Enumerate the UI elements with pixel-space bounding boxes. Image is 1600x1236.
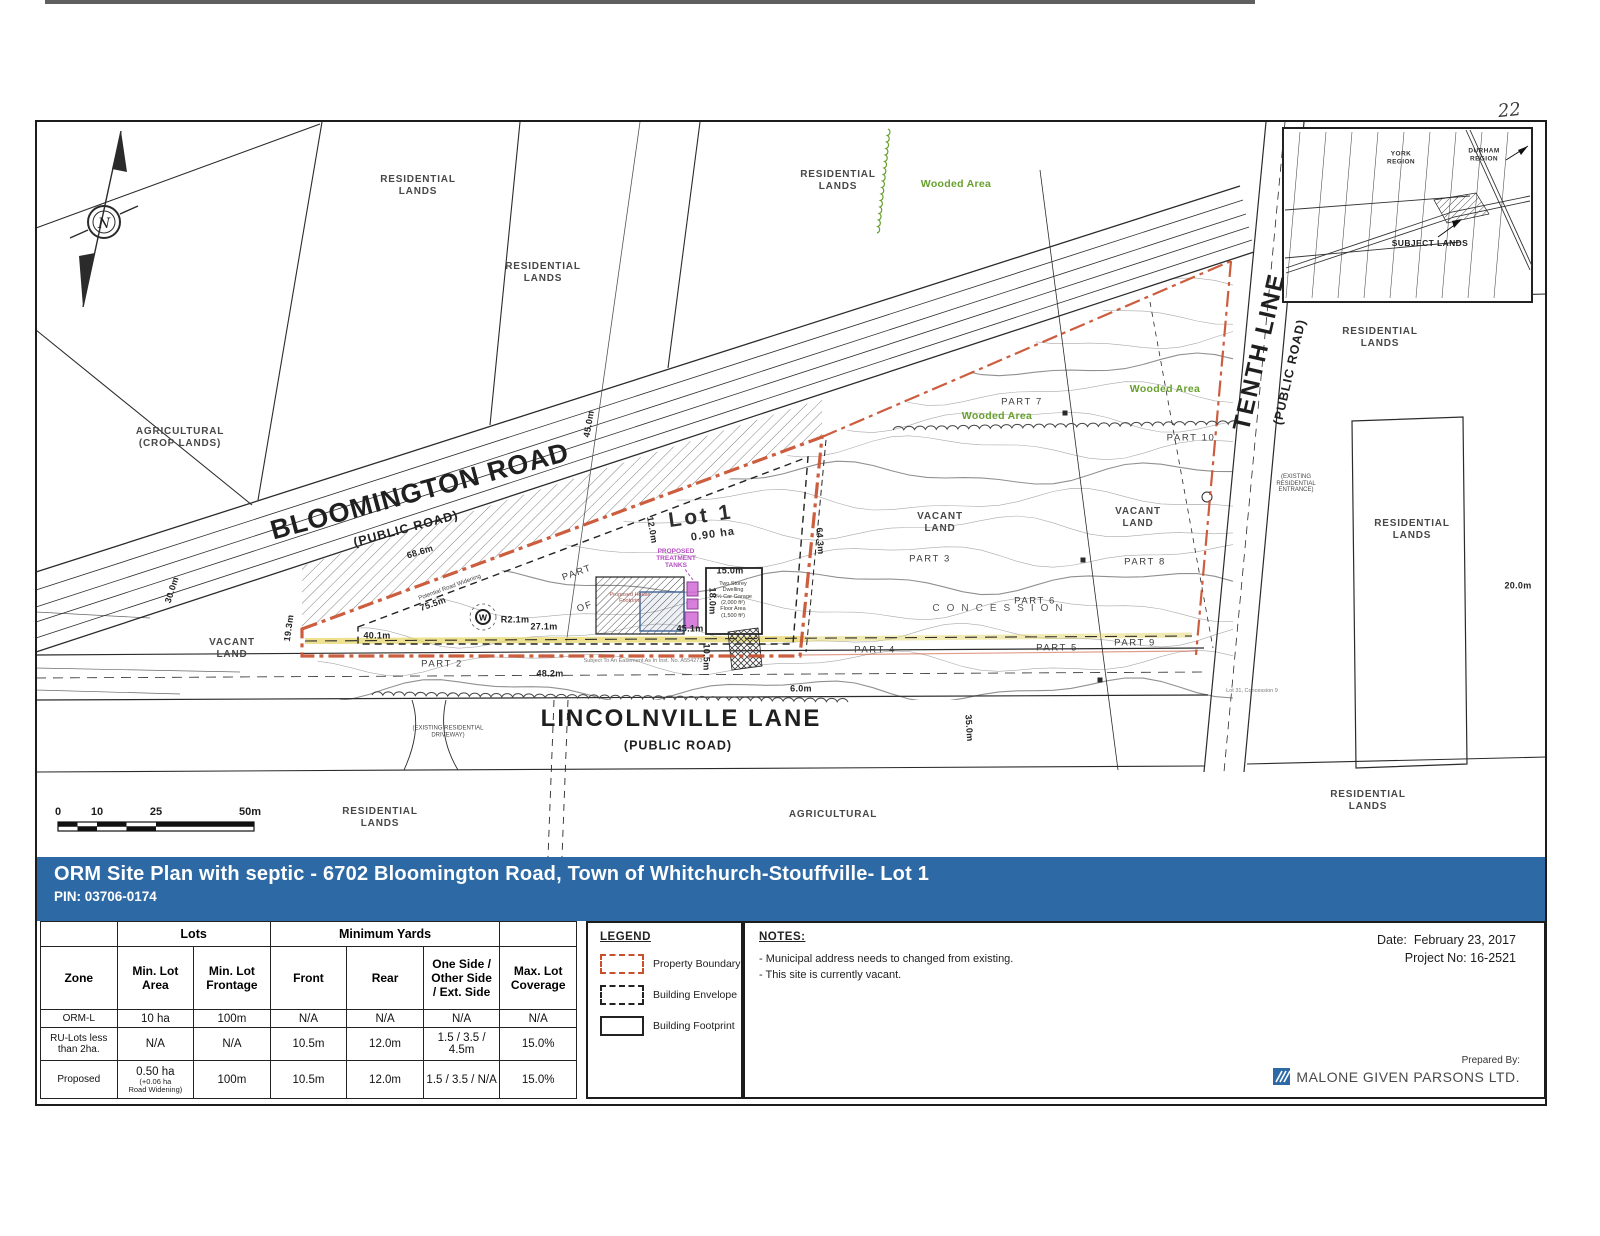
vacant-land-right: VACANT LAND	[1115, 506, 1161, 530]
table-column-header: Min. Lot Frontage	[194, 947, 271, 1010]
potential-road-widening: Potential Road Widening	[418, 574, 482, 603]
wooded-area-right: Wooded Area	[1130, 383, 1200, 395]
table-cell: 0.50 ha(+0.06 ha Road Widening)	[117, 1061, 194, 1099]
dim-r2-1m: R2.1m	[501, 615, 530, 626]
table-cell: N/A	[423, 1010, 500, 1028]
residential-lands-topleft-2: RESIDENTIAL LANDS	[505, 261, 580, 285]
residential-lands-bottom-right: RESIDENTIAL LANDS	[1330, 789, 1405, 813]
part-word: PART	[561, 562, 594, 583]
residential-lands-bottom-left: RESIDENTIAL LANDS	[342, 806, 417, 830]
agricultural-crop-lands: AGRICULTURAL (CROP LANDS)	[136, 426, 224, 450]
table-cell: 1.5 / 3.5 / 4.5m	[423, 1028, 500, 1061]
company-name: MALONE GIVEN PARSONS LTD.	[1296, 1069, 1520, 1085]
pin-number: PIN: 03706-0174	[54, 889, 1546, 904]
dim-64-3m: 64.3m	[814, 527, 826, 555]
table-cell: N/A	[500, 1010, 577, 1028]
table-cell: 10 ha	[117, 1010, 194, 1028]
existing-residential-entrance: (EXISTING RESIDENTIAL ENTRANCE)	[1276, 474, 1315, 494]
scale-tick: 10	[91, 806, 103, 818]
residential-lands-topleft-1: RESIDENTIAL LANDS	[380, 174, 455, 198]
vacant-land-mid: VACANT LAND	[917, 511, 963, 535]
zoning-table: LotsMinimum YardsZoneMin. Lot AreaMin. L…	[40, 921, 577, 1099]
scale-tick: 0	[55, 806, 61, 818]
table-cell: 15.0%	[500, 1028, 577, 1061]
note-line: - This site is currently vacant.	[759, 969, 1544, 981]
part-10: PART 10	[1167, 432, 1216, 443]
table-column-header: Zone	[41, 947, 118, 1010]
residential-lands-right-upper: RESIDENTIAL LANDS	[1342, 326, 1417, 350]
dim-19-3m: 19.3m	[282, 614, 296, 642]
table-cell: 1.5 / 3.5 / N/A	[423, 1061, 500, 1099]
dim-45-0m: 45.0m	[581, 410, 596, 438]
inset-durham-region: DURHAM REGION	[1468, 147, 1499, 162]
dim-35-0m: 35.0m	[963, 714, 975, 742]
malone-given-parsons-logo	[1273, 1068, 1290, 1085]
legend-panel: LEGEND Property BoundaryBuilding Envelop…	[586, 921, 743, 1099]
dim-12-0m: 12.0m	[644, 516, 659, 544]
table-column-header: Min. Lot Area	[117, 947, 194, 1010]
table-cell: 15.0%	[500, 1061, 577, 1099]
of-word: OF	[575, 599, 594, 615]
part-8: PART 8	[1124, 556, 1166, 567]
vacant-land-left: VACANT LAND	[209, 637, 255, 661]
agricultural-bottom: AGRICULTURAL	[789, 809, 877, 821]
dim-27-1m: 27.1m	[530, 622, 557, 633]
footprint-note: Proposed House Footprint	[610, 592, 651, 604]
dim-48-2m: 48.2m	[536, 669, 563, 680]
table-cell: 12.0m	[347, 1061, 424, 1099]
legend-item: Building Footprint	[600, 1016, 741, 1036]
part-7: PART 7	[1001, 396, 1043, 407]
project-line: Project No: 16-2521	[1377, 951, 1516, 965]
dim-68-6m: 68.6m	[406, 543, 435, 561]
table-column-header: Max. Lot Coverage	[500, 947, 577, 1010]
table-cell: N/A	[117, 1028, 194, 1061]
table-cell: N/A	[194, 1028, 271, 1061]
dwelling-note: Two Storey Dwelling 2½ Car Garage (2,000…	[714, 581, 752, 619]
plan-title: ORM Site Plan with septic - 6702 Bloomin…	[54, 863, 1546, 886]
table-cell: 10.5m	[270, 1061, 347, 1099]
wooded-area-top: Wooded Area	[921, 178, 991, 190]
table-cell: ORM-L	[41, 1010, 118, 1028]
legend-item-label: Building Footprint	[653, 1020, 735, 1032]
date-line: Date: February 23, 2017	[1377, 933, 1516, 947]
table-cell: 10.5m	[270, 1028, 347, 1061]
easement-note: Subject To An Easement As In Inst. No. A…	[584, 658, 703, 664]
dim-40-1m: 40.1m	[363, 631, 390, 642]
table-group-header	[41, 922, 118, 947]
lincolnville-lane-sub: (PUBLIC ROAD)	[624, 739, 732, 754]
dim-15-0m: 15.0m	[716, 566, 743, 577]
existing-residential-driveway: (EXISTING RESIDENTIAL DRIVEWAY)	[412, 725, 483, 738]
legend-item-label: Property Boundary	[653, 958, 741, 970]
table-cell: N/A	[347, 1010, 424, 1028]
scale-tick: 25	[150, 806, 162, 818]
residential-lands-top: RESIDENTIAL LANDS	[800, 169, 875, 193]
concession: CONCESSION	[932, 603, 1069, 615]
part-5: PART 5	[1036, 642, 1078, 653]
part-3: PART 3	[909, 553, 951, 564]
prepared-by-block: Prepared By: MALONE GIVEN PARSONS LTD.	[1273, 1055, 1520, 1085]
scale-tick: 50m	[239, 806, 261, 818]
legend-title: LEGEND	[600, 931, 741, 943]
dim-20-0m: 20.0m	[1504, 581, 1531, 592]
building-envelope-swatch	[600, 985, 644, 1005]
zoning-table-panel: LotsMinimum YardsZoneMin. Lot AreaMin. L…	[40, 921, 577, 1099]
table-cell: 100m	[194, 1061, 271, 1099]
wooded-area-mid: Wooded Area	[962, 410, 1032, 422]
prepared-by-label: Prepared By:	[1273, 1055, 1520, 1066]
table-cell: 12.0m	[347, 1028, 424, 1061]
table-cell: 100m	[194, 1010, 271, 1028]
table-column-header: One Side / Other Side / Ext. Side	[423, 947, 500, 1010]
legend-item-label: Building Envelope	[653, 989, 737, 1001]
date-project-block: Date: February 23, 2017 Project No: 16-2…	[1377, 933, 1516, 969]
table-column-header: Rear	[347, 947, 424, 1010]
table-group-header: Minimum Yards	[270, 922, 500, 947]
residential-lands-right-mid: RESIDENTIAL LANDS	[1374, 518, 1449, 542]
dim-6-0m: 6.0m	[790, 684, 812, 695]
table-column-header: Front	[270, 947, 347, 1010]
building-footprint-swatch	[600, 1016, 644, 1036]
inset-subject-lands: SUBJECT LANDS	[1392, 238, 1469, 248]
table-group-header: Lots	[117, 922, 270, 947]
dim-45-1m: 45.1m	[676, 624, 703, 635]
handwritten-page-number: 22	[1497, 99, 1522, 122]
table-group-header	[500, 922, 577, 947]
table-cell: RU-Lots less than 2ha.	[41, 1028, 118, 1061]
legend-item: Building Envelope	[600, 985, 741, 1005]
property-boundary-swatch	[600, 954, 644, 974]
table-cell: N/A	[270, 1010, 347, 1028]
legend-item: Property Boundary	[600, 954, 741, 974]
table-cell: Proposed	[41, 1061, 118, 1099]
dim-30-0m: 30.0m	[163, 576, 181, 605]
notes-panel: NOTES: - Municipal address needs to chan…	[743, 921, 1546, 1099]
title-banner: ORM Site Plan with septic - 6702 Bloomin…	[36, 857, 1546, 921]
part-4: PART 4	[854, 644, 896, 655]
site-plan-sheet: W N	[0, 0, 1600, 1236]
inset-york-region: YORK REGION	[1387, 150, 1415, 165]
proposed-treatment-tanks: PROPOSED TREATMENT TANKS	[656, 549, 696, 569]
lincolnville-lane-label: LINCOLNVILLE LANE	[541, 705, 822, 733]
part-9: PART 9	[1114, 637, 1156, 648]
part-2: PART 2	[421, 658, 463, 669]
lot-concession-note: Lot 31, Concession 9	[1226, 688, 1278, 694]
